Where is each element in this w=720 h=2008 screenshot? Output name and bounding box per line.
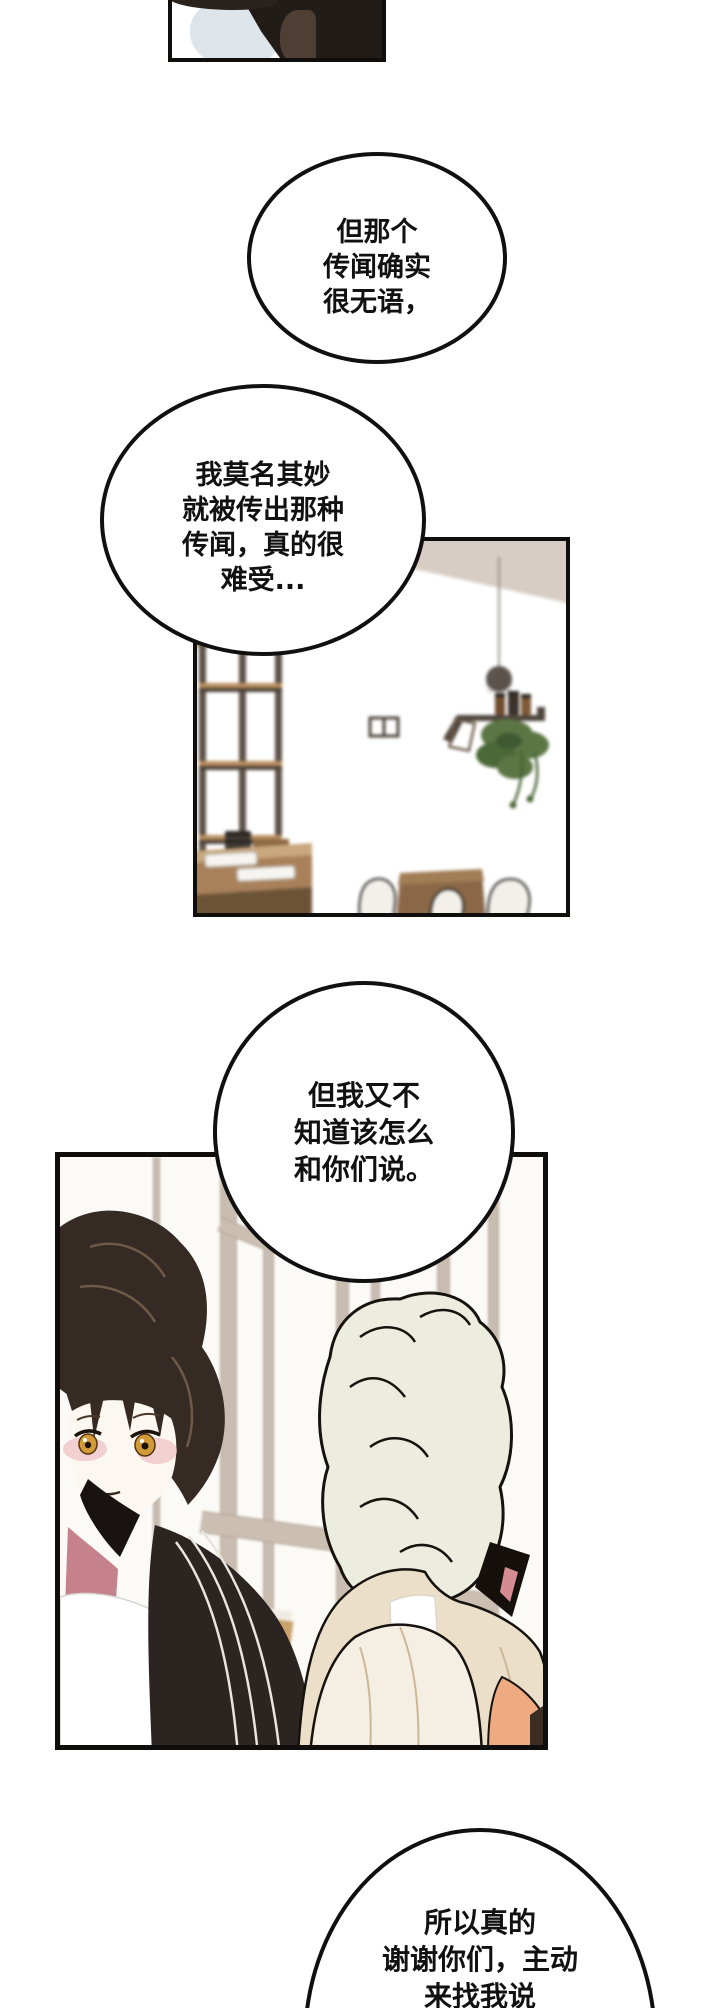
speech-line: 难受...	[182, 563, 344, 598]
speech-bubble-3: 但我又不 知道该怎么 和你们说。	[213, 981, 515, 1283]
speech-text: 所以真的 谢谢你们，主动 来找我说	[382, 1832, 578, 2008]
wavy-hair	[320, 1293, 512, 1603]
speech-line: 知道该怎么	[294, 1114, 434, 1151]
box-shelf	[370, 718, 398, 736]
speech-line: 就被传出那种	[182, 493, 344, 528]
speech-bubble-2: 我莫名其妙 就被传出那种 传闻，真的很 难受...	[100, 384, 426, 656]
speech-bubble-1: 但那个 传闻确实 很无语，	[247, 152, 507, 364]
comic-page: 但那个 传闻确实 很无语， 我莫名其妙 就被传出那种 传闻，真的很 难受... …	[0, 0, 720, 2008]
speech-line: 传闻确实	[323, 250, 431, 285]
speech-line: 但我又不	[294, 1077, 434, 1114]
speech-line: 传闻，真的很	[182, 528, 344, 563]
speech-text: 但那个 传闻确实 很无语，	[323, 197, 431, 320]
hanging-plant	[476, 719, 549, 809]
dark-figure-shading	[280, 10, 316, 62]
speech-line: 很无语，	[323, 285, 431, 320]
speech-line: 来找我说	[382, 1978, 578, 2008]
white-tee	[60, 1593, 154, 1750]
counter	[193, 843, 312, 917]
speech-line: 和你们说。	[294, 1151, 434, 1188]
speech-line: 但那个	[323, 215, 431, 250]
speech-bubble-4: 所以真的 谢谢你们，主动 来找我说	[303, 1828, 657, 2008]
character-dark-hair	[60, 1211, 316, 1750]
track-jacket	[148, 1525, 316, 1750]
character-blonde	[298, 1293, 548, 1750]
speech-line: 谢谢你们，主动	[382, 1941, 578, 1978]
speech-text: 我莫名其妙 就被传出那种 传闻，真的很 难受...	[182, 442, 344, 598]
speech-line: 所以真的	[382, 1904, 578, 1941]
panel-top	[168, 0, 386, 62]
speech-text: 但我又不 知道该怎么 和你们说。	[294, 1077, 434, 1188]
speech-line: 我莫名其妙	[182, 458, 344, 493]
